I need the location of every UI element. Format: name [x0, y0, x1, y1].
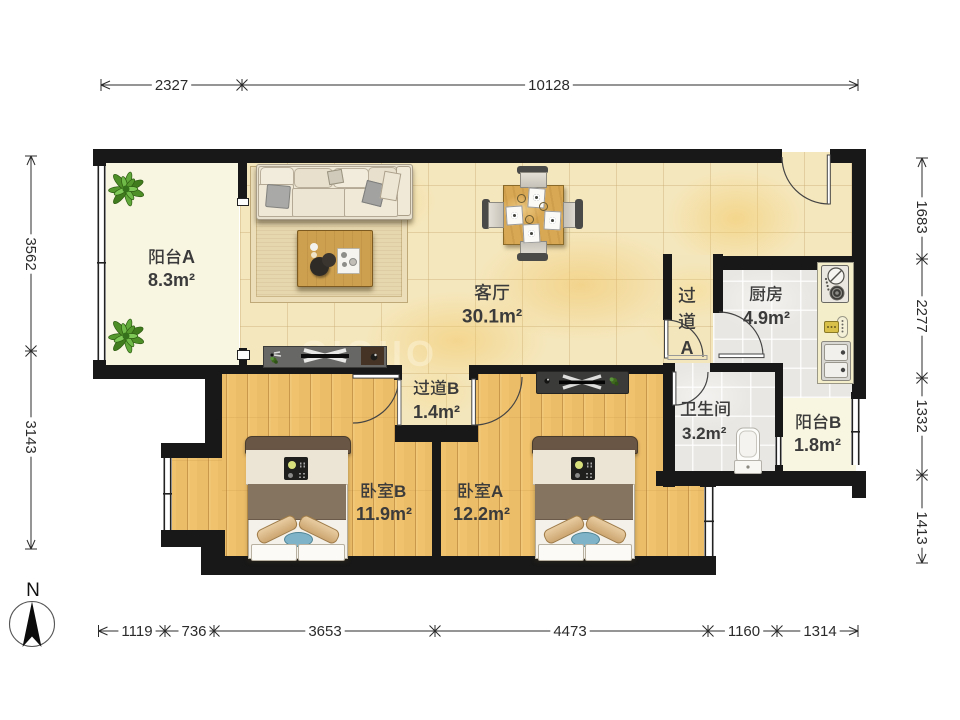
svg-text:1.8m²: 1.8m²: [794, 435, 841, 455]
svg-text:N: N: [26, 580, 40, 601]
svg-text:1.4m²: 1.4m²: [413, 402, 460, 422]
svg-text:1314: 1314: [803, 623, 836, 640]
svg-text:4.9m²: 4.9m²: [743, 308, 790, 328]
svg-text:11.9m²: 11.9m²: [356, 504, 412, 524]
svg-text:10128: 10128: [528, 77, 570, 94]
svg-text:A: A: [491, 482, 503, 501]
svg-text:3.2m²: 3.2m²: [682, 424, 727, 443]
svg-text:1119: 1119: [121, 623, 152, 640]
svg-text:B: B: [447, 379, 459, 398]
svg-text:3653: 3653: [308, 623, 341, 640]
svg-text:2327: 2327: [155, 77, 188, 94]
svg-text:B: B: [829, 413, 841, 432]
svg-text:2277: 2277: [913, 299, 930, 332]
svg-text:3562: 3562: [22, 237, 39, 270]
svg-text:1332: 1332: [913, 399, 930, 432]
svg-text:A: A: [681, 338, 694, 356]
svg-text:8.3m²: 8.3m²: [148, 270, 195, 290]
svg-text:736: 736: [181, 623, 206, 640]
svg-text:1160: 1160: [728, 623, 760, 640]
svg-text:1413: 1413: [913, 511, 930, 544]
svg-text:4473: 4473: [553, 623, 586, 640]
svg-text:30.1m²: 30.1m²: [462, 307, 522, 328]
svg-text:12.2m²: 12.2m²: [453, 504, 510, 524]
svg-text:1683: 1683: [913, 200, 930, 233]
svg-text:B: B: [394, 482, 406, 501]
svg-text:3143: 3143: [22, 420, 39, 453]
svg-text:A: A: [182, 248, 195, 267]
